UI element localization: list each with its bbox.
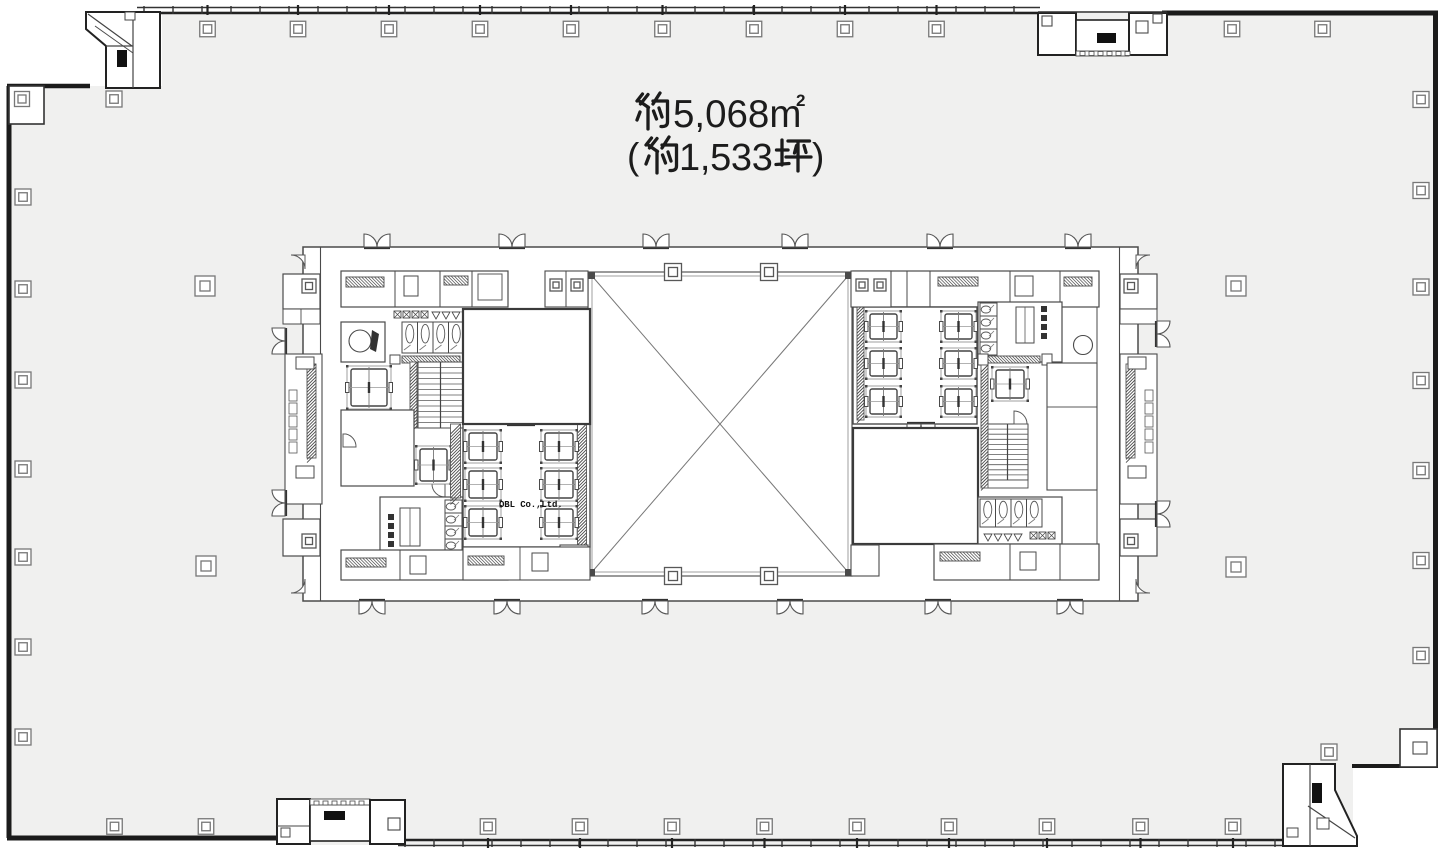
svg-text:): ) [812, 136, 824, 177]
svg-text:OBL Co.,Ltd.: OBL Co.,Ltd. [499, 500, 563, 510]
svg-text:5,068m: 5,068m [673, 93, 801, 136]
svg-text:2: 2 [796, 91, 805, 110]
svg-text:1,533: 1,533 [679, 137, 773, 179]
svg-text:(: ( [627, 136, 640, 177]
